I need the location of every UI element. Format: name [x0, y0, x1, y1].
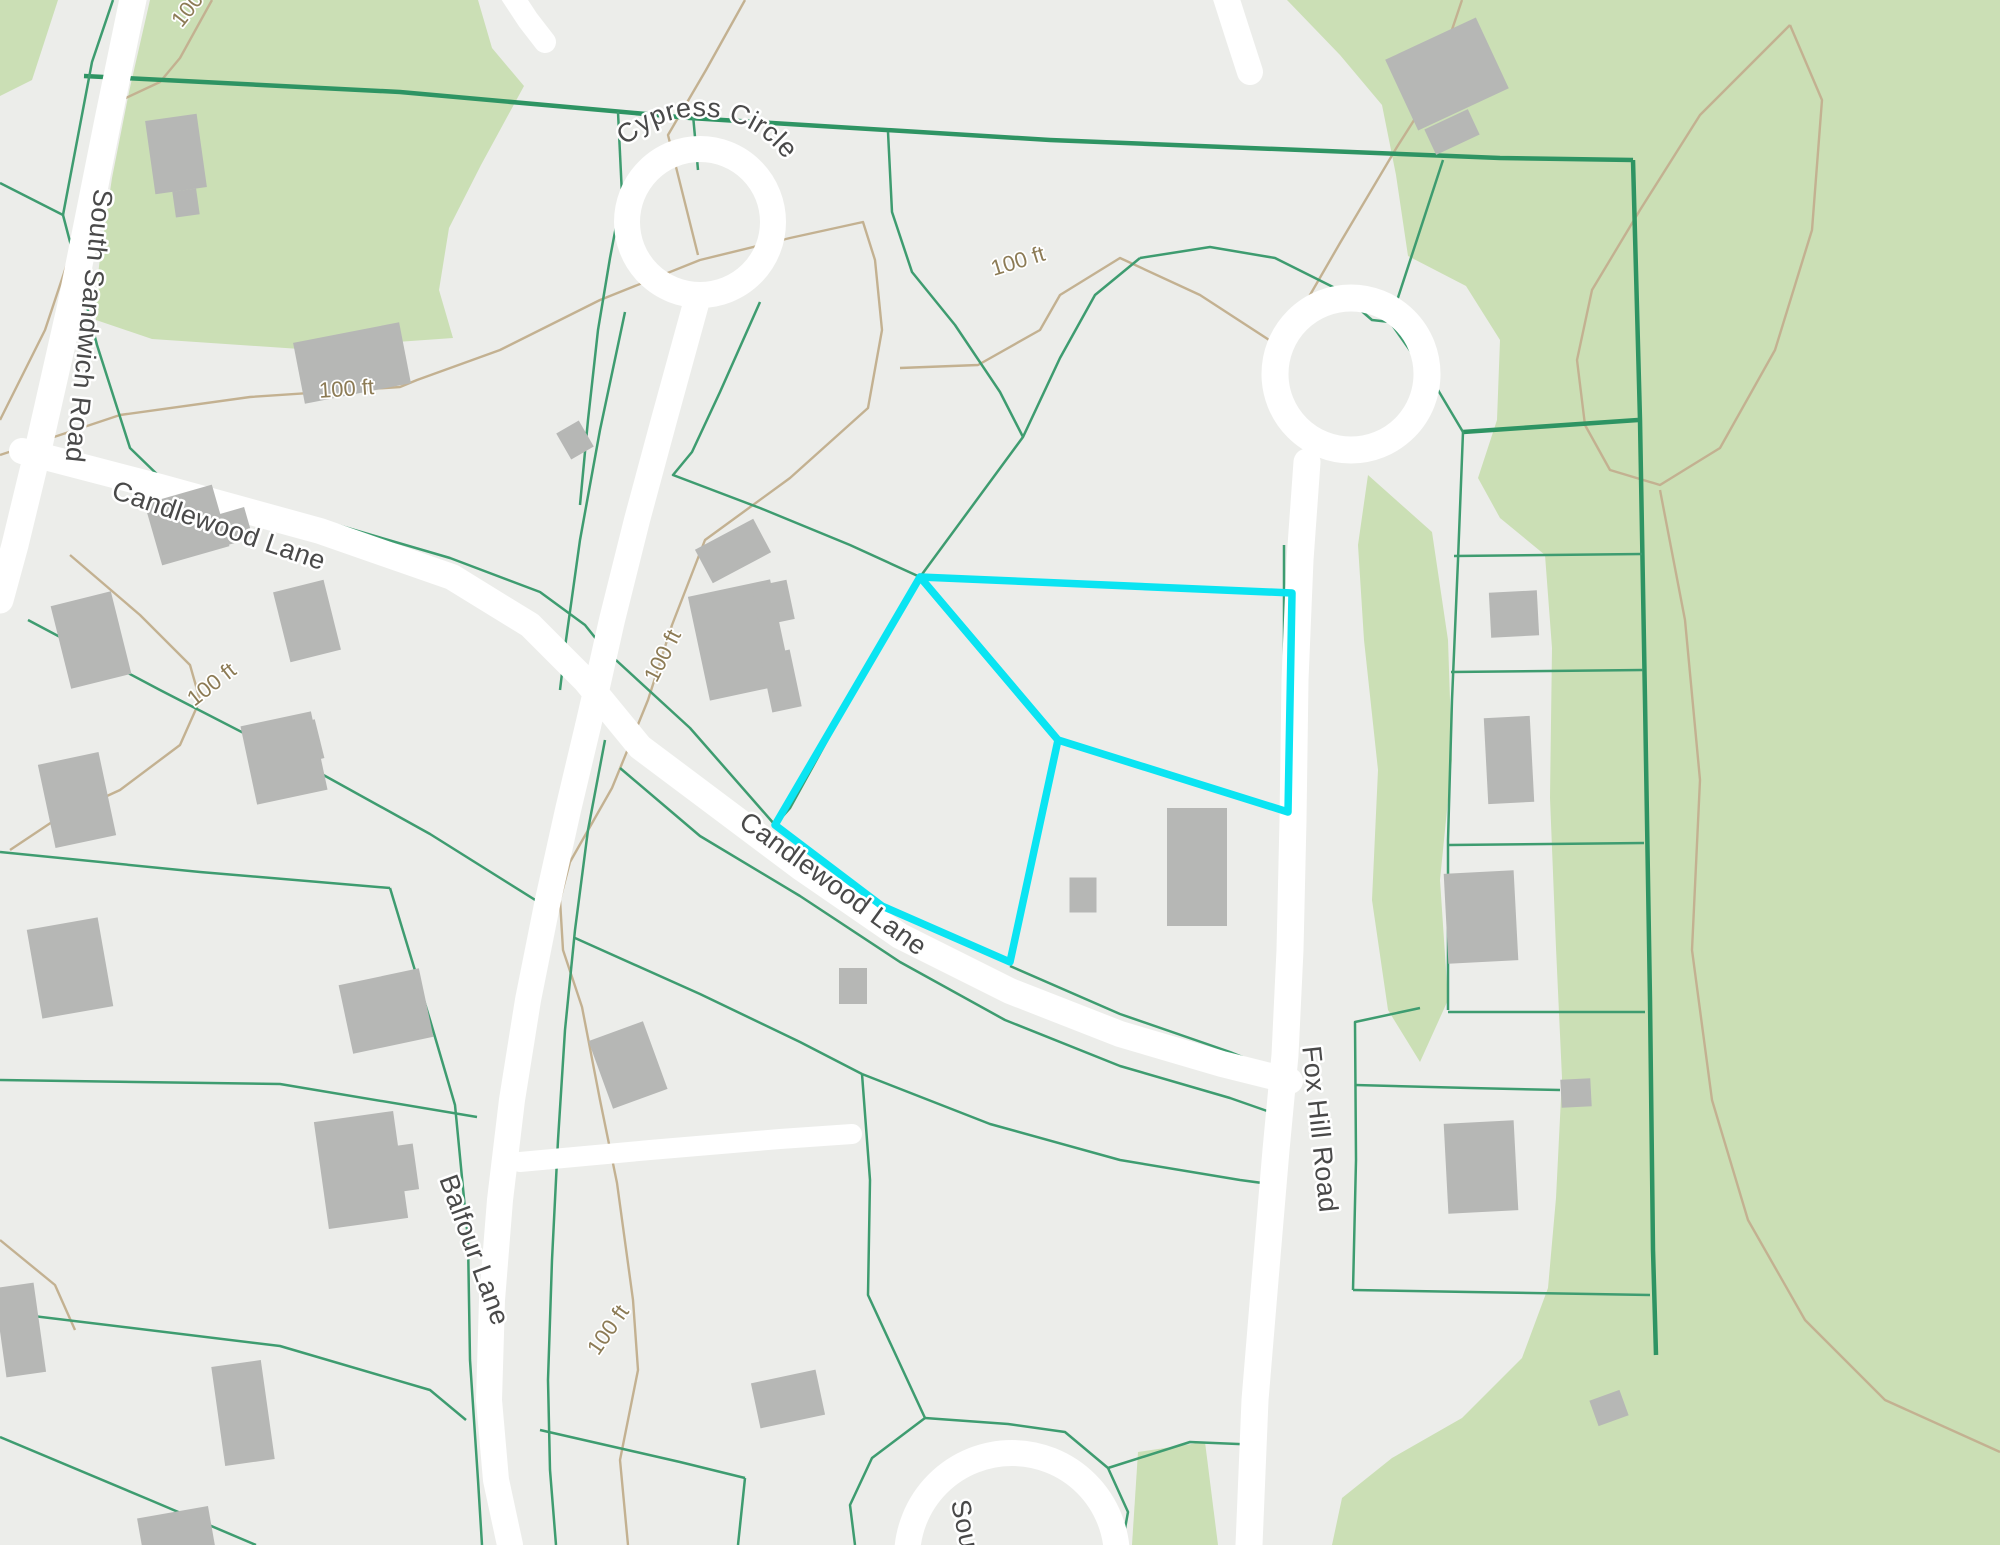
- selected-parcel-north[interactable]: [920, 577, 1292, 812]
- road-balfour[interactable]: [489, 726, 588, 1545]
- contour-label-2: 100 ft: [639, 625, 686, 685]
- contour-line-1: [0, 222, 882, 1545]
- road-cypress-stem[interactable]: [588, 300, 697, 726]
- building-footprint-4: [695, 519, 771, 584]
- street-label-south-partial: Sou: [945, 1497, 985, 1545]
- road-fox-hill-culdesac[interactable]: [1275, 298, 1427, 450]
- building-footprint-34: [137, 1506, 215, 1545]
- building-footprint-12: [1489, 590, 1539, 637]
- contour-label-0: 100 ft: [318, 374, 375, 403]
- street-label-candlewood-lane-east: Candlewood Lane: [734, 806, 933, 962]
- parcel-boundary-line-44: [1355, 1085, 1560, 1090]
- road-cypress-circle-loop[interactable]: [627, 149, 773, 295]
- street-label-fox-hill-road: Fox Hill Road: [1296, 1044, 1343, 1213]
- building-footprint-16: [1444, 1120, 1519, 1214]
- parcel-boundary-line-20: [920, 258, 1140, 577]
- map-viewport[interactable]: 100 ft100 ft100 ft100 ft100 ft100South S…: [0, 0, 2000, 1545]
- building-footprint-32: [751, 1370, 825, 1429]
- parcel-boundary-line-9: [0, 852, 390, 888]
- road-side-spur[interactable]: [520, 1134, 852, 1162]
- building-footprint-8: [1167, 808, 1227, 926]
- road-top-stub[interactable]: [505, 0, 545, 42]
- veg-roadside-strip: [1358, 475, 1452, 1062]
- building-footprint-20: [51, 591, 132, 688]
- building-footprint-0: [145, 114, 207, 195]
- building-footprint-14: [1444, 870, 1519, 964]
- veg-corner: [0, 0, 58, 96]
- parcel-boundary-line-19: [888, 132, 1023, 437]
- contour-label-1: 100 ft: [988, 241, 1048, 281]
- building-footprint-15: [1560, 1078, 1591, 1108]
- contour-label-3: 100 ft: [582, 1300, 634, 1359]
- building-footprint-21: [273, 580, 341, 662]
- parcel-boundary-line-43: [1353, 1008, 1420, 1290]
- building-footprint-26: [339, 968, 434, 1054]
- parcel-boundary-line-34: [738, 1478, 745, 1545]
- road-fox-hill-north-stub[interactable]: [1222, 0, 1250, 72]
- building-footprint-9: [1070, 878, 1097, 913]
- parcel-boundary-line-13: [0, 1437, 256, 1545]
- building-footprint-25: [27, 917, 114, 1018]
- building-footprint-13: [1484, 716, 1534, 804]
- building-footprint-29: [211, 1360, 274, 1466]
- parcel-boundary-line-29: [862, 1074, 925, 1418]
- selected-parcel-south[interactable]: [775, 577, 1058, 962]
- building-footprint-7: [760, 650, 801, 713]
- parcel-boundary-line-30: [862, 1074, 1277, 1185]
- road-fox-hill[interactable]: [1249, 462, 1307, 1545]
- parcel-boundary-line-4: [0, 183, 63, 215]
- road-south-culdesac[interactable]: [907, 1453, 1117, 1545]
- parcel-boundary-line-33: [540, 1430, 745, 1478]
- building-footprint-1: [172, 188, 199, 217]
- building-footprint-33: [839, 968, 867, 1004]
- building-footprint-23: [38, 752, 116, 848]
- parcel-boundary-line-11: [0, 1080, 477, 1117]
- building-footprint-30: [0, 1283, 46, 1378]
- parcel-map-canvas[interactable]: 100 ft100 ft100 ft100 ft100 ft100South S…: [0, 0, 2000, 1545]
